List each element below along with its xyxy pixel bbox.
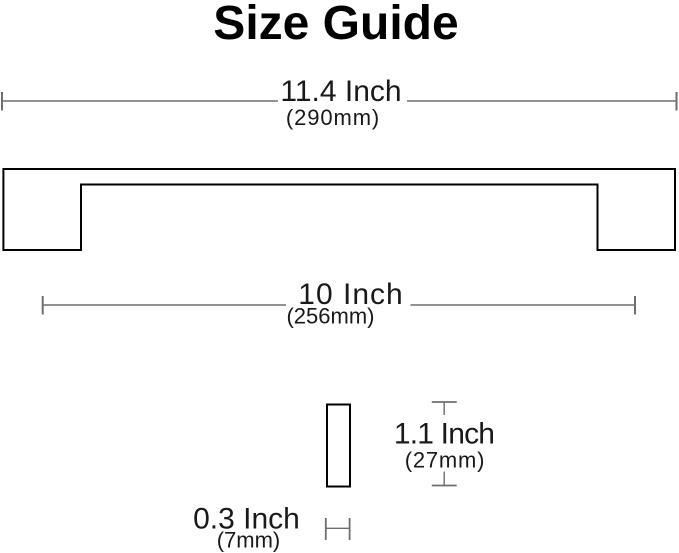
svg-text:11.4 Inch: 11.4 Inch	[280, 75, 401, 108]
svg-text:(7mm): (7mm)	[217, 528, 281, 553]
svg-text:1.1 Inch: 1.1 Inch	[394, 418, 494, 451]
svg-text:Size Guide: Size Guide	[213, 0, 458, 50]
svg-text:(256mm): (256mm)	[286, 304, 374, 329]
svg-text:(290mm): (290mm)	[286, 105, 380, 130]
svg-text:(27mm): (27mm)	[405, 448, 486, 473]
